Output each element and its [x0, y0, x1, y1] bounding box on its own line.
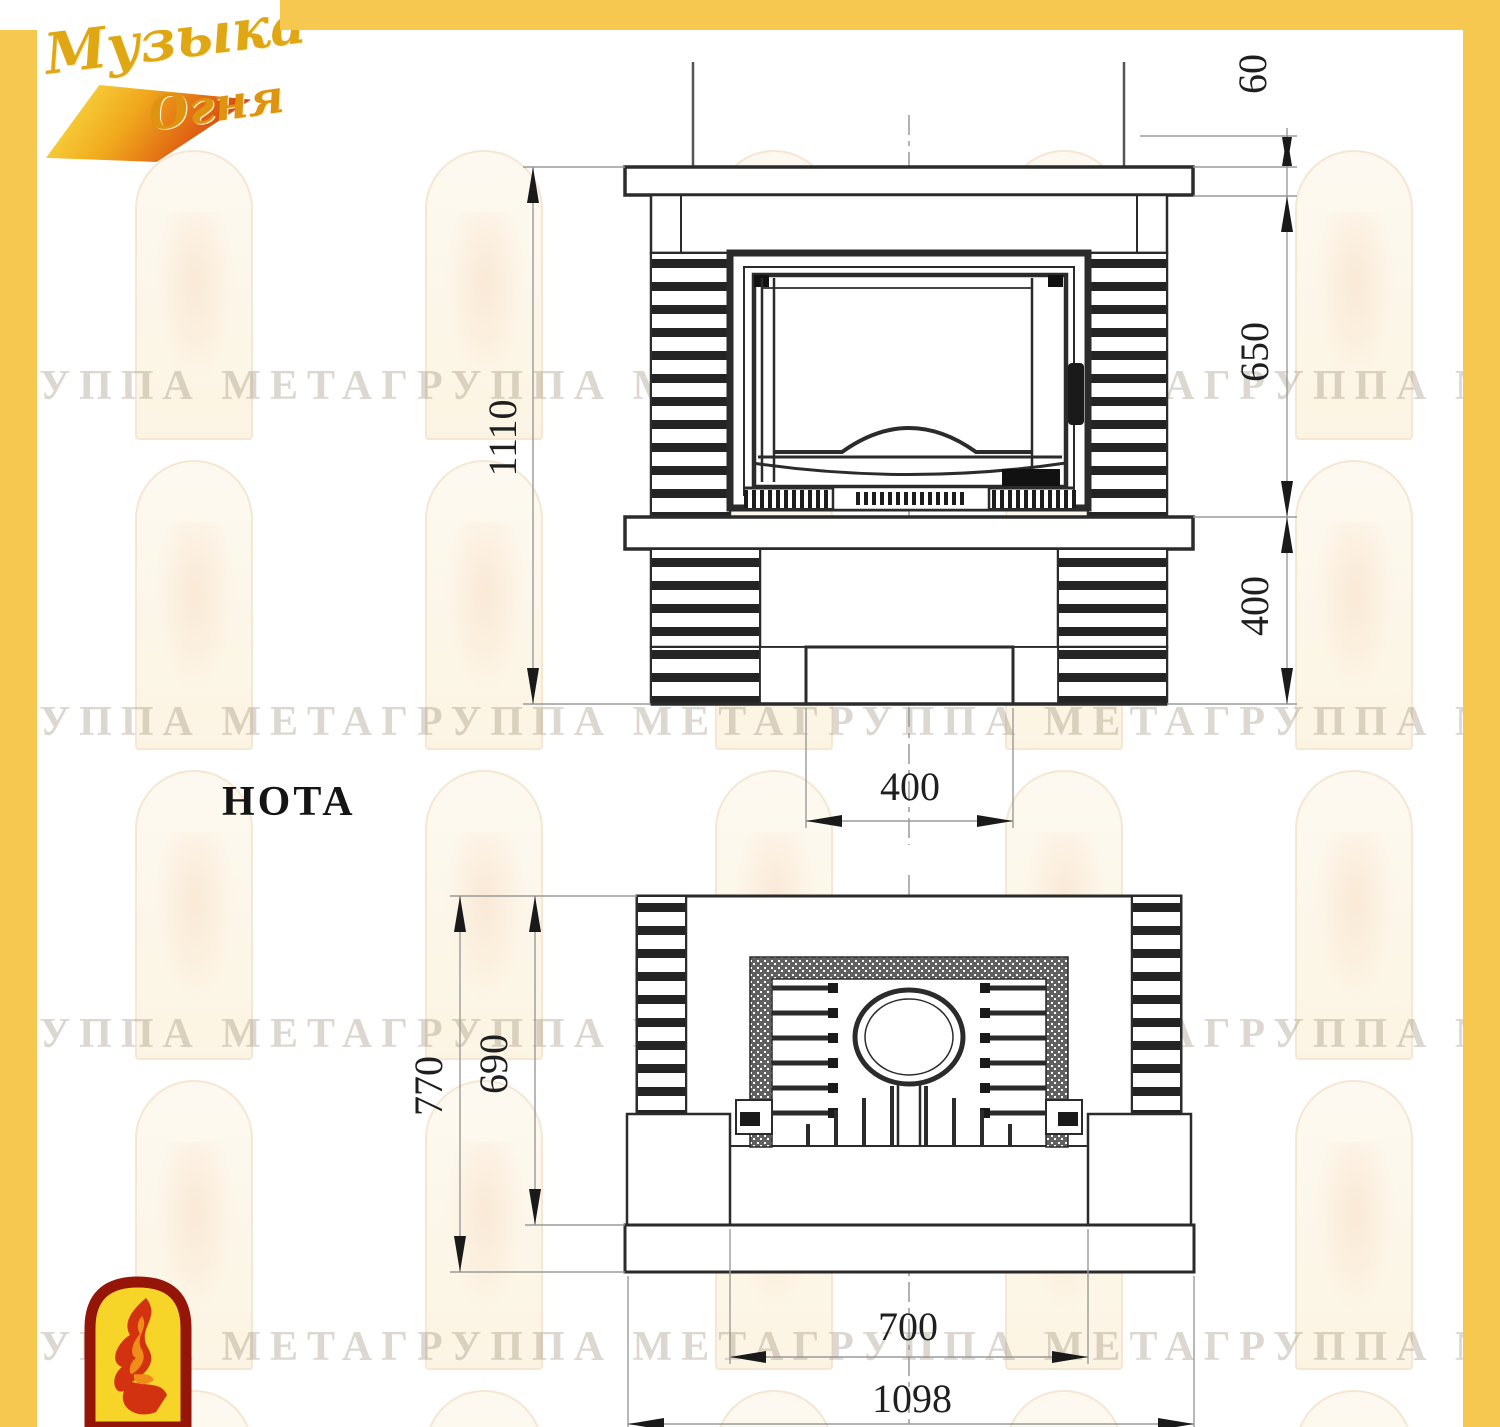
- air-grill-left: [744, 490, 832, 508]
- chimney-pipes: [693, 62, 1124, 167]
- fireplace-technical-drawing: 1110 60 650 400 400 770 690 700 1098: [0, 0, 1500, 1427]
- frame-band-left: [0, 30, 37, 1427]
- air-grill-right: [988, 490, 1076, 508]
- firebox-insert: [730, 253, 1088, 510]
- base-pilaster-right: [1058, 549, 1167, 647]
- base-plinth: [806, 647, 1013, 704]
- base-lower-right: [1058, 647, 1167, 704]
- dim-width-total: 1098: [872, 1376, 952, 1421]
- base-lower-left: [651, 647, 760, 704]
- dim-base-height: 400: [1232, 576, 1277, 636]
- pilaster-footprint-left: [627, 1114, 730, 1225]
- brand-logo-line2: Огня: [145, 69, 287, 141]
- frame-band-top: [280, 0, 1500, 30]
- dim-flue-offset: 60: [1230, 54, 1275, 94]
- dim-plinth-width: 400: [880, 764, 940, 809]
- front-elevation: [625, 62, 1193, 845]
- dim-opening-width: 700: [878, 1304, 938, 1349]
- flue-outlet: [855, 990, 963, 1084]
- brick-pilaster-right: [1088, 253, 1167, 517]
- door-handle: [1068, 363, 1084, 425]
- hearth-slab: [625, 1225, 1194, 1272]
- ash-lip: [1002, 469, 1060, 486]
- model-name: НОТА: [222, 778, 356, 826]
- brick-pilaster-left: [651, 253, 730, 517]
- dim-depth-inner: 690: [471, 1034, 516, 1094]
- dim-height-total: 1110: [480, 399, 525, 476]
- brand-logo: Музыка Огня: [38, 0, 293, 172]
- page: ГРУППА МЕТАГРУППА МЕТАГРУППА МЕТАГРУППА …: [0, 0, 1500, 1427]
- dim-firebox-height: 650: [1232, 322, 1277, 382]
- lower-shelf: [625, 517, 1193, 549]
- dim-depth-total: 770: [406, 1056, 451, 1116]
- plan-column-left: [637, 896, 686, 1114]
- frame-band-right: [1463, 0, 1500, 1427]
- under-mantel-tier: [651, 195, 1167, 253]
- mantel-shelf: [625, 167, 1193, 195]
- plan-column-right: [1132, 896, 1181, 1114]
- pilaster-footprint-right: [1088, 1114, 1191, 1225]
- flame-emblem-icon: [84, 1276, 192, 1427]
- base-recess: [760, 549, 1058, 647]
- base-pilaster-left: [651, 549, 760, 647]
- door-hinge-top-right: [1048, 275, 1063, 287]
